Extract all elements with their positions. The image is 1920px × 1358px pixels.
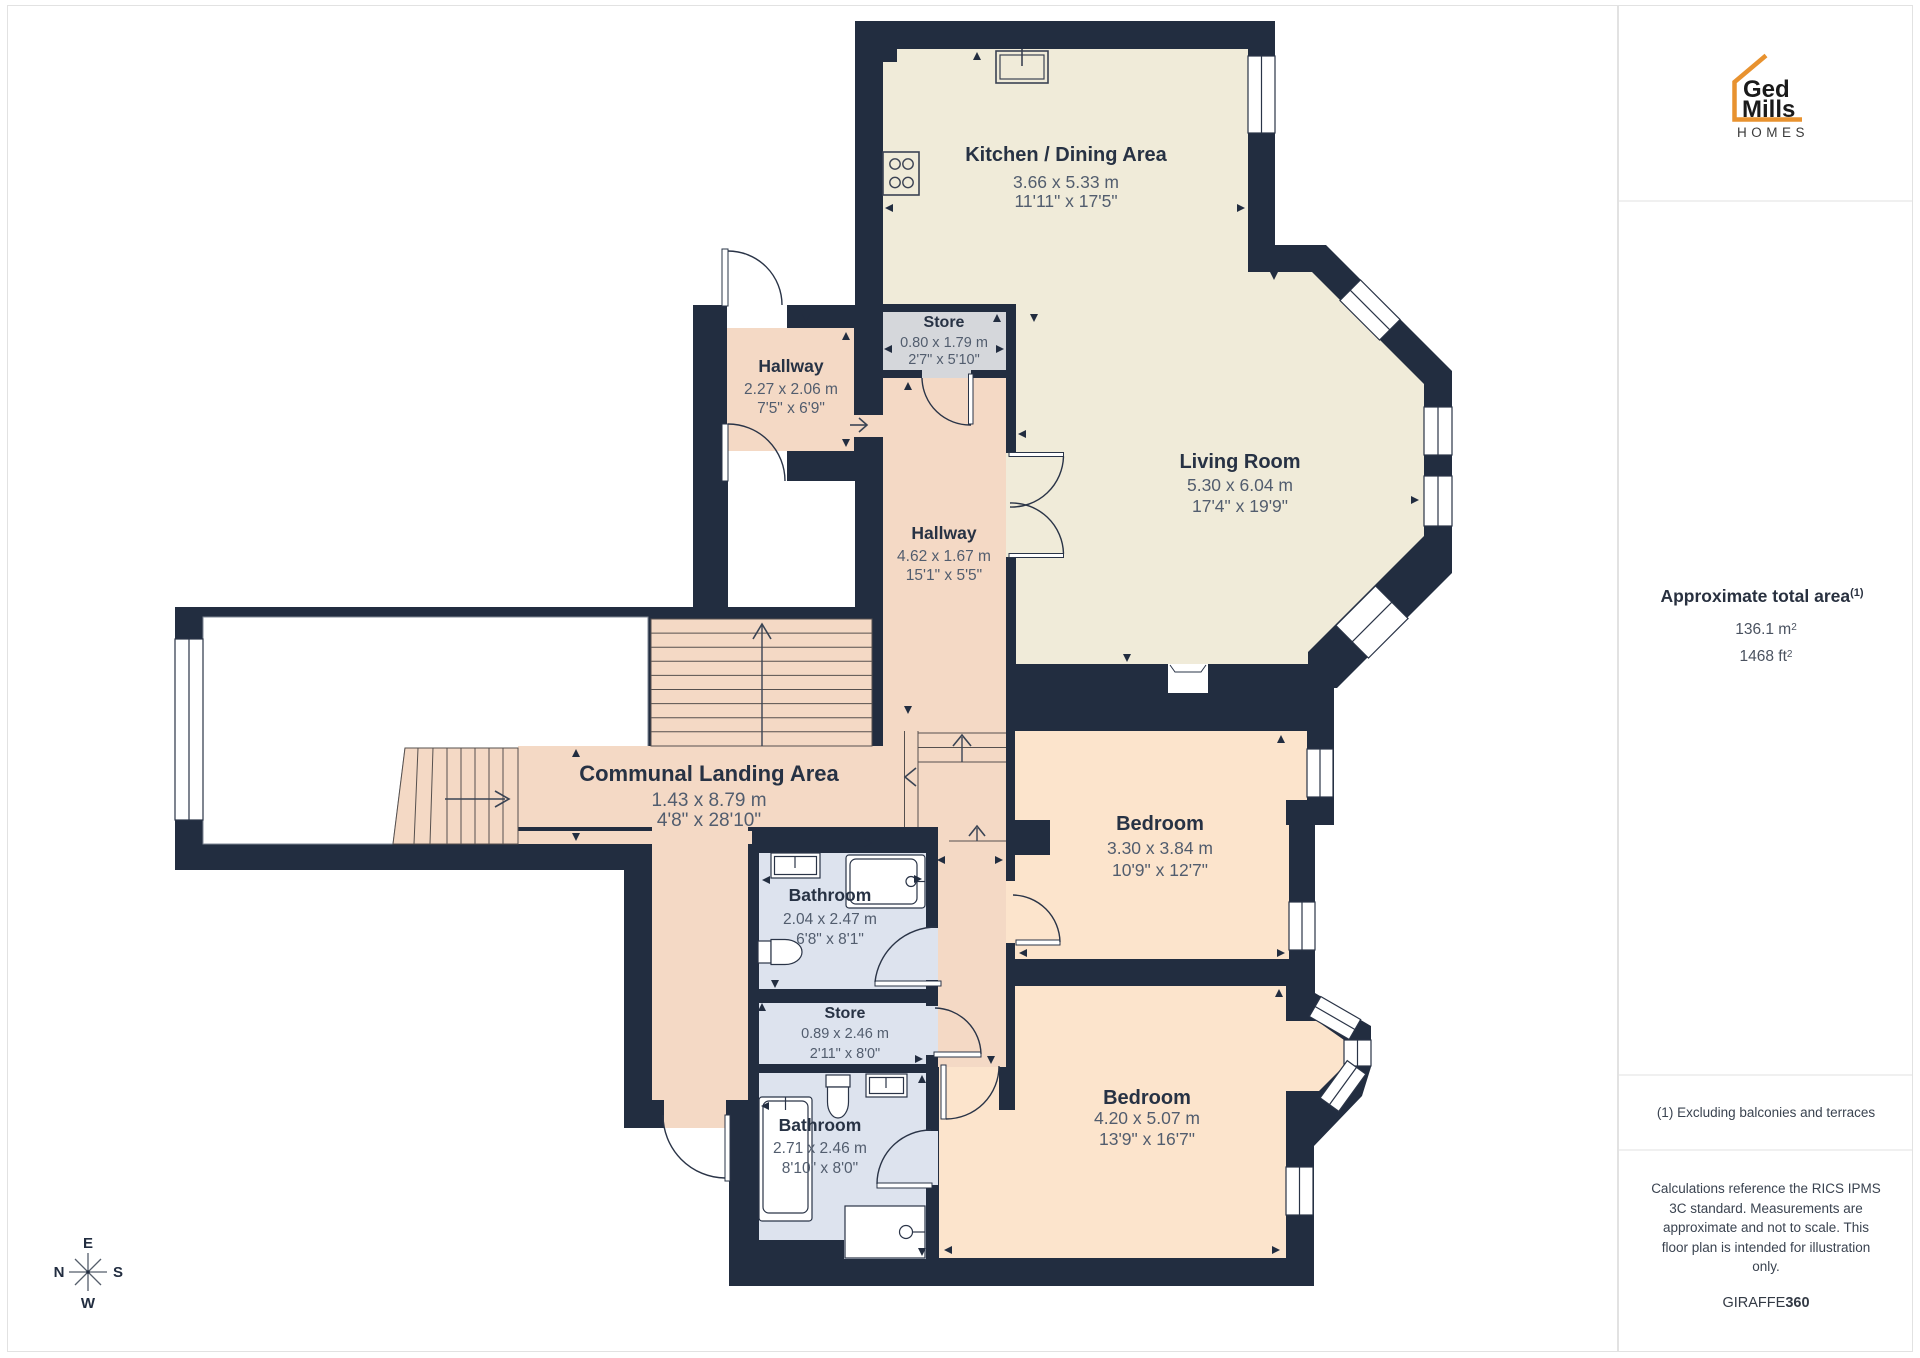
- svg-text:1.43 x 8.79 m: 1.43 x 8.79 m: [651, 790, 766, 811]
- svg-text:13'9" x 16'7": 13'9" x 16'7": [1099, 1129, 1195, 1149]
- svg-text:4.62 x 1.67 m: 4.62 x 1.67 m: [897, 548, 991, 565]
- svg-text:Bathroom: Bathroom: [789, 885, 872, 905]
- svg-text:11'11" x 17'5": 11'11" x 17'5": [1014, 191, 1117, 211]
- svg-text:N: N: [54, 1264, 65, 1281]
- svg-text:HOMES: HOMES: [1737, 125, 1809, 140]
- svg-text:S: S: [113, 1264, 123, 1281]
- svg-text:(1) Excluding balconies and te: (1) Excluding balconies and terraces: [1657, 1105, 1876, 1120]
- svg-text:3C standard. Measurements are: 3C standard. Measurements are: [1669, 1201, 1863, 1216]
- svg-text:4'8" x 28'10": 4'8" x 28'10": [657, 810, 761, 831]
- svg-text:136.1 m2: 136.1 m2: [1735, 621, 1797, 638]
- svg-text:Approximate total area(1): Approximate total area(1): [1660, 586, 1863, 606]
- svg-text:W: W: [81, 1295, 96, 1312]
- svg-text:2.27 x 2.06 m: 2.27 x 2.06 m: [744, 381, 838, 398]
- svg-text:4.20 x 5.07 m: 4.20 x 5.07 m: [1094, 1108, 1200, 1128]
- svg-text:Hallway: Hallway: [758, 356, 823, 376]
- svg-text:Hallway: Hallway: [911, 523, 976, 543]
- svg-text:Store: Store: [924, 314, 965, 331]
- svg-text:2.71 x 2.46 m: 2.71 x 2.46 m: [773, 1140, 867, 1157]
- svg-text:Bathroom: Bathroom: [779, 1115, 862, 1135]
- svg-text:0.89 x 2.46 m: 0.89 x 2.46 m: [801, 1026, 889, 1042]
- svg-text:Living Room: Living Room: [1179, 451, 1300, 473]
- svg-text:1468 ft2: 1468 ft2: [1740, 648, 1793, 665]
- svg-text:2'7" x 5'10": 2'7" x 5'10": [908, 352, 979, 368]
- svg-text:Calculations reference the RIC: Calculations reference the RICS IPMS: [1651, 1181, 1881, 1196]
- svg-text:0.80 x 1.79 m: 0.80 x 1.79 m: [900, 335, 988, 351]
- svg-text:2'11" x 8'0": 2'11" x 8'0": [810, 1046, 880, 1062]
- svg-text:floor plan is intended for ill: floor plan is intended for illustration: [1662, 1240, 1871, 1255]
- svg-text:Kitchen / Dining Area: Kitchen / Dining Area: [965, 144, 1167, 166]
- svg-text:Mills: Mills: [1742, 96, 1795, 123]
- svg-text:Communal Landing Area: Communal Landing Area: [579, 761, 839, 786]
- svg-text:6'8" x 8'1": 6'8" x 8'1": [796, 931, 864, 948]
- svg-text:3.30 x 3.84 m: 3.30 x 3.84 m: [1107, 838, 1213, 858]
- svg-text:7'5" x 6'9": 7'5" x 6'9": [757, 400, 825, 417]
- svg-text:17'4" x 19'9": 17'4" x 19'9": [1192, 496, 1288, 516]
- svg-text:Bedroom: Bedroom: [1116, 813, 1204, 835]
- svg-text:3.66 x 5.33 m: 3.66 x 5.33 m: [1013, 172, 1119, 192]
- svg-text:Bedroom: Bedroom: [1103, 1087, 1191, 1109]
- svg-text:only.: only.: [1752, 1259, 1780, 1274]
- svg-text:15'1" x 5'5": 15'1" x 5'5": [906, 567, 982, 584]
- svg-text:10'9" x 12'7": 10'9" x 12'7": [1112, 860, 1208, 880]
- svg-text:Store: Store: [825, 1005, 866, 1022]
- svg-text:GIRAFFE360: GIRAFFE360: [1722, 1295, 1809, 1311]
- svg-text:5.30 x 6.04 m: 5.30 x 6.04 m: [1187, 475, 1293, 495]
- svg-text:E: E: [83, 1235, 93, 1252]
- svg-text:2.04 x 2.47 m: 2.04 x 2.47 m: [783, 911, 877, 928]
- svg-text:approximate and not to scale.: approximate and not to scale. This: [1663, 1220, 1869, 1235]
- svg-text:8'10" x 8'0": 8'10" x 8'0": [782, 1160, 858, 1177]
